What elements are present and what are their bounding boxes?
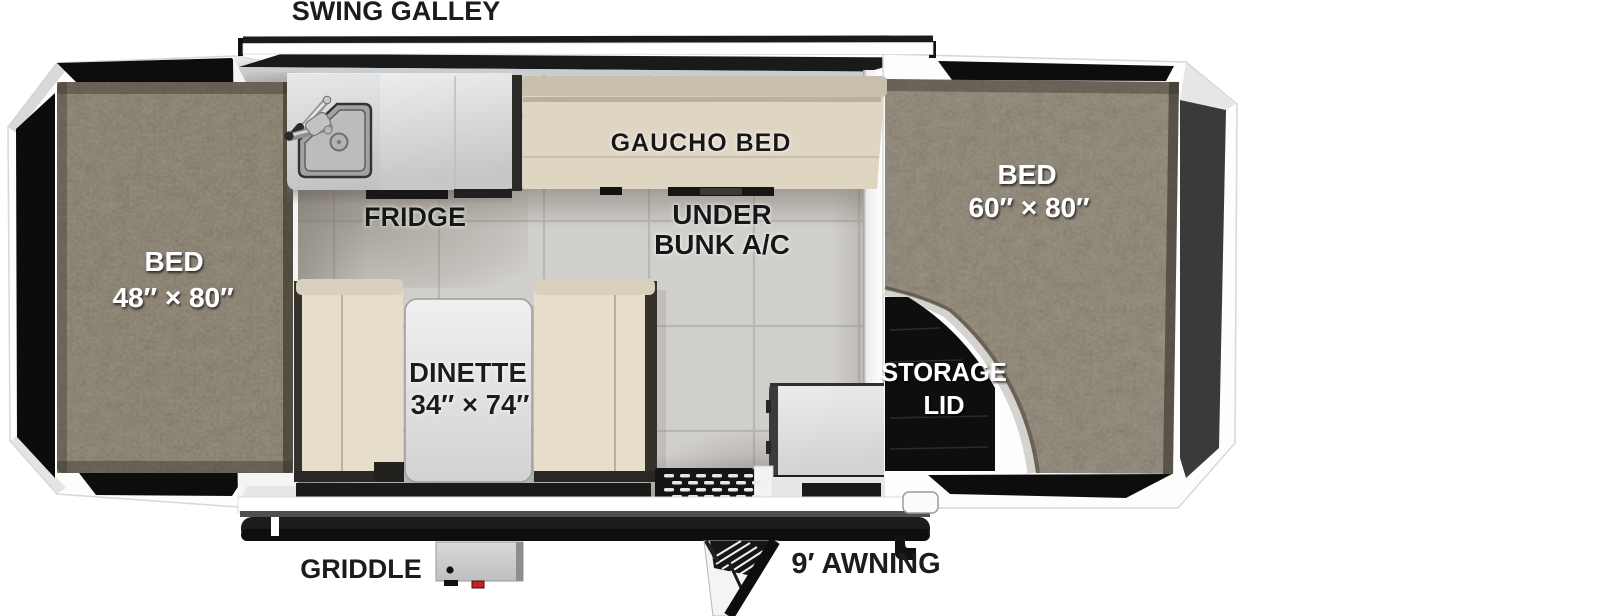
svg-text:DINETTE: DINETTE	[409, 357, 527, 388]
svg-text:STORAGE: STORAGE	[881, 359, 1007, 387]
svg-text:LID: LID	[923, 392, 964, 420]
svg-text:GRIDDLE: GRIDDLE	[300, 554, 422, 584]
svg-text:34″ × 74″: 34″ × 74″	[411, 389, 530, 420]
svg-text:BED: BED	[997, 159, 1056, 190]
svg-text:UNDER: UNDER	[672, 199, 772, 230]
svg-text:GAUCHO BED: GAUCHO BED	[611, 129, 792, 157]
svg-text:BUNK A/C: BUNK A/C	[654, 229, 790, 260]
svg-text:48″ × 80″: 48″ × 80″	[112, 282, 233, 313]
svg-text:FRIDGE: FRIDGE	[364, 202, 466, 232]
svg-text:9′ AWNING: 9′ AWNING	[791, 548, 940, 580]
svg-text:60″ × 80″: 60″ × 80″	[968, 192, 1089, 223]
svg-text:SWING GALLEY: SWING GALLEY	[292, 0, 501, 26]
svg-text:BED: BED	[144, 246, 203, 277]
